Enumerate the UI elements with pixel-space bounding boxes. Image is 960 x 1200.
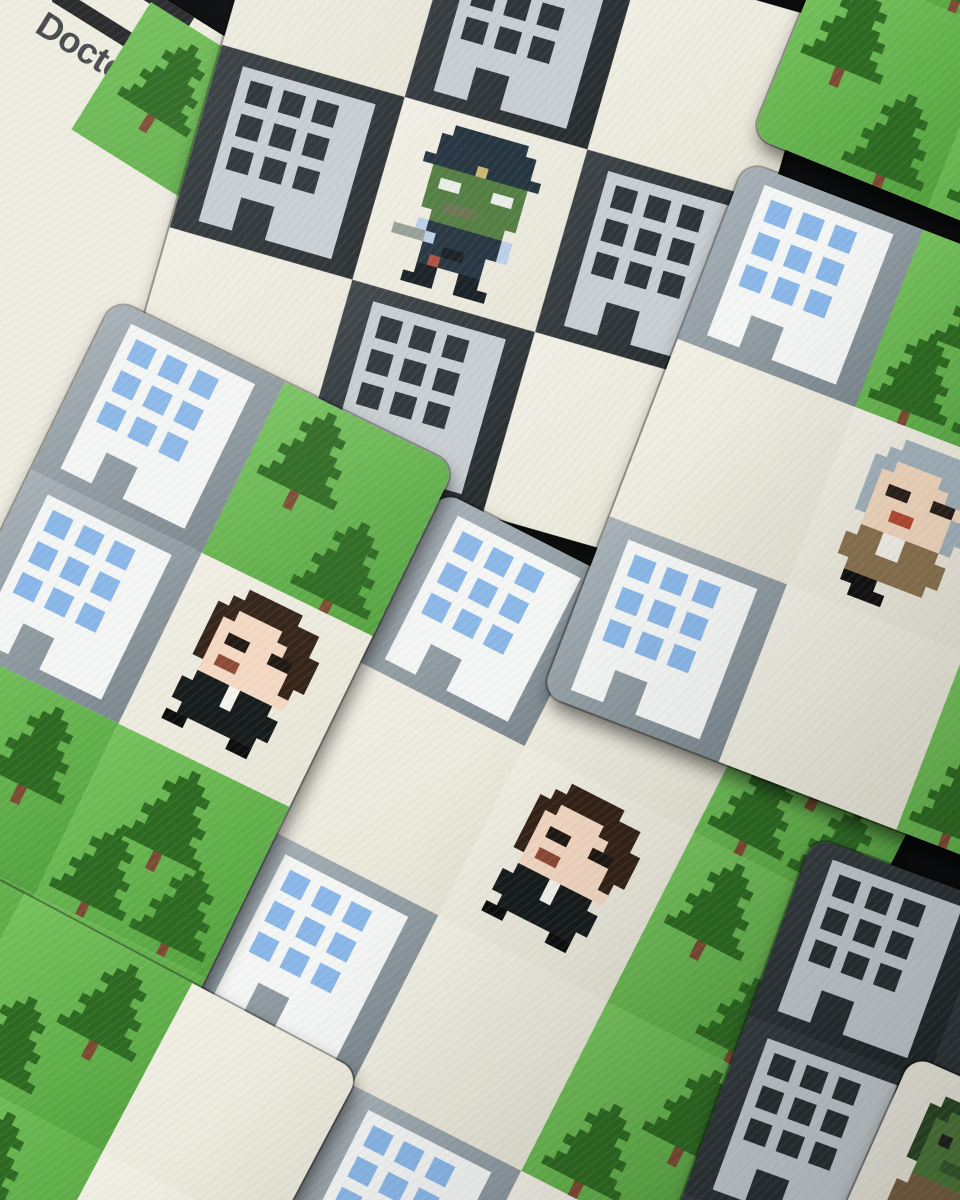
building-icon-dark [434, 0, 611, 129]
photo-of-pixel-art-cards: Doctor [0, 0, 960, 1200]
building-icon-gray [707, 185, 894, 385]
pine-tree-icon [793, 0, 912, 102]
building-icon-gray [571, 540, 758, 740]
building-icon-dark [778, 860, 960, 1058]
old-man-sprite [814, 427, 960, 633]
building-icon-dark [199, 66, 376, 259]
card-collage: Doctor [0, 0, 960, 1200]
police-officer-sprite [379, 116, 561, 313]
